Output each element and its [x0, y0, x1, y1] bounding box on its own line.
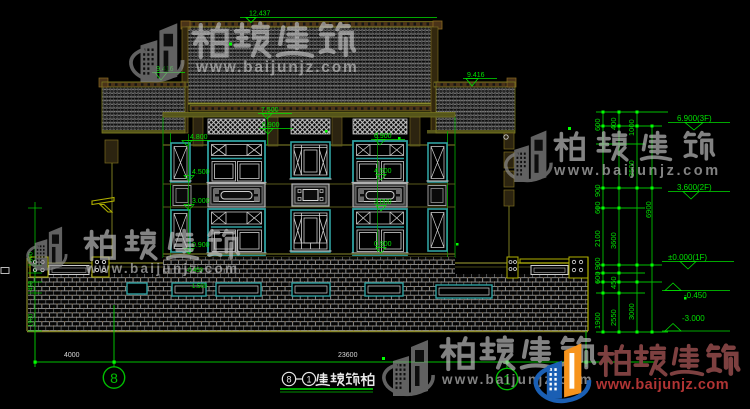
svg-text:7.500: 7.500 [261, 107, 279, 114]
svg-text:1: 1 [306, 375, 311, 385]
svg-text:0.900: 0.900 [374, 241, 392, 248]
svg-text:3.600(2F): 3.600(2F) [677, 183, 712, 192]
svg-text:6.900(3F): 6.900(3F) [677, 114, 712, 123]
svg-text:23600: 23600 [338, 352, 358, 359]
svg-text:www.baijunjz.com: www.baijunjz.com [595, 377, 729, 393]
svg-text:4.500: 4.500 [192, 169, 210, 176]
svg-text:3.000: 3.000 [192, 198, 210, 205]
svg-text:400: 400 [609, 117, 618, 130]
svg-text:6900: 6900 [644, 201, 653, 218]
svg-text:4.500: 4.500 [374, 168, 392, 175]
svg-text:450: 450 [609, 276, 618, 289]
svg-text:4.800: 4.800 [190, 134, 208, 141]
svg-text:6.900: 6.900 [262, 122, 280, 129]
svg-text:8: 8 [110, 370, 118, 386]
svg-text:-3.000: -3.000 [682, 314, 705, 323]
svg-text:2100: 2100 [593, 230, 602, 247]
svg-text:-1.500: -1.500 [190, 284, 208, 290]
svg-text:900: 900 [593, 257, 602, 270]
svg-text:600: 600 [593, 271, 602, 284]
svg-text:www.baijunjz.com: www.baijunjz.com [553, 163, 721, 179]
svg-text:1000: 1000 [627, 119, 636, 136]
svg-text:600: 600 [593, 201, 602, 214]
svg-text:±0.000(1F): ±0.000(1F) [668, 253, 707, 262]
svg-text:1900: 1900 [593, 312, 602, 329]
svg-text:12.437: 12.437 [249, 11, 271, 18]
svg-text:www.baijunjz.com: www.baijunjz.com [195, 59, 359, 76]
svg-text:3000: 3000 [627, 303, 636, 320]
svg-text:www.baijunjz.com: www.baijunjz.com [85, 261, 239, 276]
svg-text:-0.450: -0.450 [684, 291, 707, 300]
svg-text:450: 450 [29, 280, 35, 291]
svg-text:1900: 1900 [29, 313, 35, 327]
svg-text:600: 600 [593, 118, 602, 131]
svg-text:3.000: 3.000 [374, 199, 392, 206]
svg-text:9.416: 9.416 [467, 72, 485, 79]
svg-text:2550: 2550 [609, 309, 618, 326]
svg-text:4000: 4000 [64, 352, 80, 359]
svg-text:6.900: 6.900 [374, 133, 392, 140]
svg-text:900: 900 [593, 184, 602, 197]
svg-text:3600: 3600 [609, 232, 618, 249]
svg-text:0.900: 0.900 [192, 242, 210, 249]
svg-text:8: 8 [286, 375, 291, 385]
